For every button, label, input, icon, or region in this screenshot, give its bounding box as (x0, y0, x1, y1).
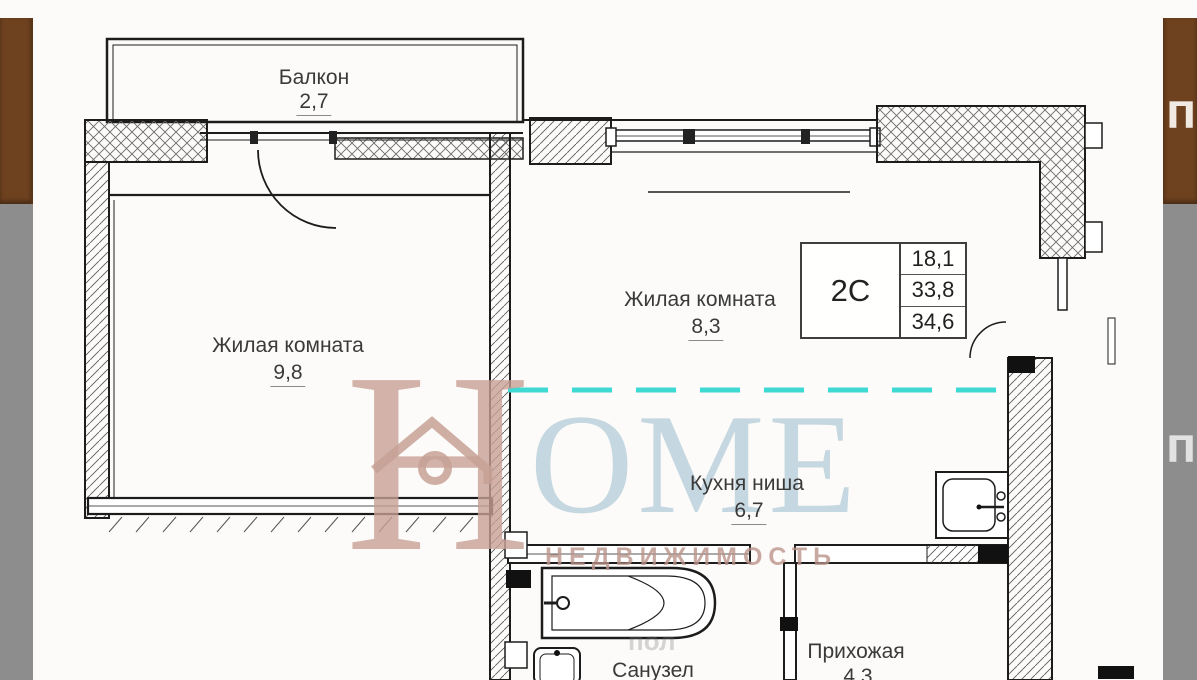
apartment-info-table: 2С 18,1 33,8 34,6 (800, 242, 967, 339)
living-room-left-area: 9,8 (270, 361, 305, 387)
balcony-label: Балкон (279, 66, 349, 90)
living-room-right-label: Жилая комната (624, 288, 776, 312)
total-area-value: 34,6 (901, 307, 965, 337)
living-room-right-area: 8,3 (688, 315, 723, 341)
bathroom-sink (534, 648, 580, 680)
hallway-area: 4,3 (840, 665, 875, 680)
bathtub (542, 568, 715, 638)
kitchen-niche-area: 6,7 (731, 499, 766, 525)
bathroom-label: Санузел (612, 659, 694, 680)
floorplan-drawing (0, 0, 1197, 680)
apartment-type: 2С (802, 244, 901, 337)
living-area-value: 18,1 (901, 244, 965, 275)
living-room-left-label: Жилая комната (212, 334, 364, 358)
hallway-label: Прихожая (807, 640, 904, 664)
kitchen-niche-label: Кухня ниша (690, 472, 804, 496)
floorplan-screenshot: по по (0, 0, 1197, 680)
central-wall (490, 133, 510, 680)
apartment-area-value: 33,8 (901, 275, 965, 306)
kitchen-sink (936, 472, 1008, 538)
balcony-area: 2,7 (296, 90, 331, 116)
